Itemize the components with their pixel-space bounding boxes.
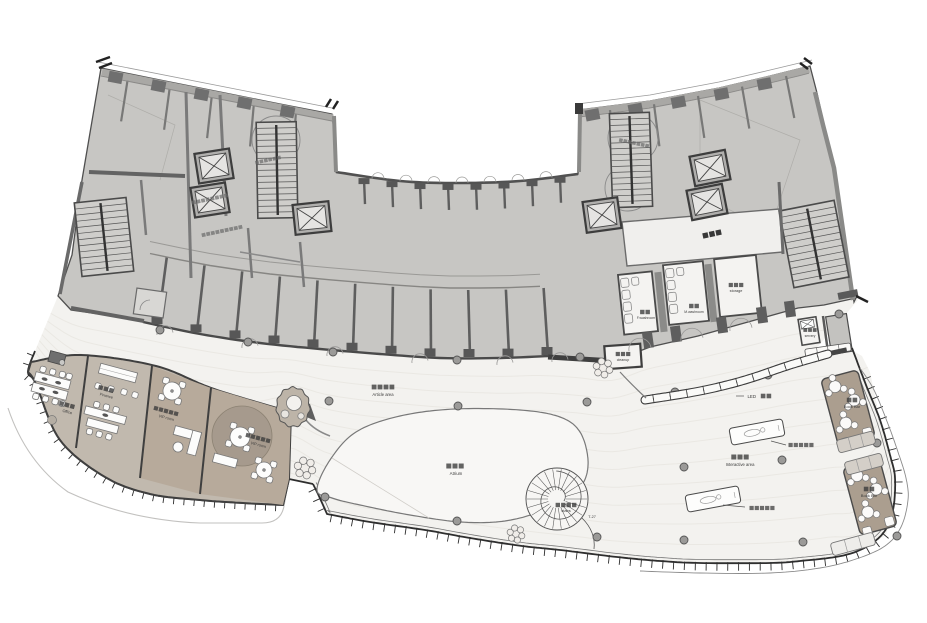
svg-text:Book Bar: Book Bar xyxy=(844,404,861,409)
svg-text:Interactive area: Interactive area xyxy=(726,462,756,467)
svg-text:Atrium: Atrium xyxy=(450,471,463,476)
svg-text:storage: storage xyxy=(730,289,743,293)
svg-text:stairs: stairs xyxy=(561,508,571,513)
svg-text:Article area: Article area xyxy=(372,392,394,397)
svg-text:LED: LED xyxy=(747,394,756,399)
svg-text:F.washroom: F.washroom xyxy=(637,316,655,320)
svg-text:cleanup: cleanup xyxy=(617,358,630,362)
svg-text:Book Bar: Book Bar xyxy=(861,493,878,498)
svg-text:T-27: T-27 xyxy=(588,515,596,519)
svg-text:servery: servery xyxy=(805,334,816,338)
svg-text:M.washroom: M.washroom xyxy=(684,310,704,314)
